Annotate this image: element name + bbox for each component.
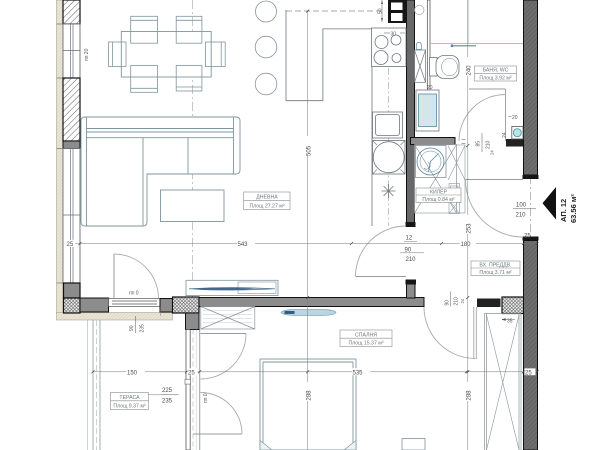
svg-text:150: 150 (127, 371, 138, 377)
svg-text:235: 235 (140, 324, 146, 333)
svg-text:535: 535 (353, 371, 364, 377)
svg-text:ВХ. ПРЕДДВ.: ВХ. ПРЕДДВ. (479, 263, 511, 269)
svg-text:КИЛЕР: КИЛЕР (430, 190, 448, 196)
svg-text:288: 288 (306, 390, 312, 401)
svg-text:90: 90 (129, 325, 135, 331)
svg-text:30: 30 (391, 32, 397, 38)
svg-text:пп 0: пп 0 (129, 291, 139, 297)
svg-text:63.56 м²: 63.56 м² (569, 194, 578, 223)
svg-text:ТЕРАСА: ТЕРАСА (119, 395, 140, 401)
svg-text:180: 180 (461, 242, 472, 248)
svg-text:288: 288 (466, 390, 472, 401)
svg-text:СПАЛНЯ: СПАЛНЯ (355, 333, 377, 339)
svg-text:12: 12 (406, 236, 413, 242)
svg-text:Площ 3.92 м²: Площ 3.92 м² (479, 76, 512, 82)
svg-text:Площ 9.37 м²: Площ 9.37 м² (113, 403, 146, 409)
svg-text:50: 50 (378, 8, 384, 14)
svg-text:85: 85 (476, 141, 482, 147)
svg-text:505: 505 (306, 145, 312, 156)
svg-text:Площ 3.71 м²: Площ 3.71 м² (479, 270, 512, 276)
svg-text:20: 20 (427, 85, 433, 91)
svg-text:Площ 15.37 м²: Площ 15.37 м² (348, 341, 383, 347)
svg-text:АП. 12: АП. 12 (559, 199, 568, 222)
svg-text:пп 0: пп 0 (203, 393, 209, 403)
svg-text:25: 25 (525, 371, 532, 377)
svg-text:235: 235 (162, 399, 173, 405)
svg-text:210: 210 (486, 140, 492, 149)
svg-text:24: 24 (502, 132, 508, 138)
svg-text:пп 20: пп 20 (84, 48, 90, 61)
svg-text:543: 543 (238, 242, 249, 248)
svg-text:ДНЕВНА: ДНЕВНА (256, 195, 278, 201)
svg-text:210: 210 (516, 213, 527, 219)
svg-text:24: 24 (490, 150, 495, 155)
svg-text:225: 225 (162, 388, 173, 394)
svg-text:210: 210 (453, 297, 459, 306)
svg-text:24: 24 (460, 298, 465, 303)
svg-text:25: 25 (524, 234, 531, 240)
svg-text:25: 25 (67, 242, 74, 248)
svg-text:210: 210 (406, 257, 417, 263)
svg-text:90: 90 (444, 300, 450, 306)
svg-text:25: 25 (188, 371, 195, 377)
svg-text:20: 20 (512, 115, 518, 121)
svg-text:100: 100 (516, 203, 527, 209)
svg-text:240: 240 (466, 65, 472, 76)
svg-text:БАНЯ, WC: БАНЯ, WC (483, 68, 509, 74)
svg-text:35: 35 (507, 318, 513, 324)
svg-text:253: 253 (466, 223, 472, 234)
svg-text:Площ 27.27 м²: Площ 27.27 м² (249, 203, 284, 209)
svg-text:Площ 0.84 м²: Площ 0.84 м² (422, 197, 455, 203)
